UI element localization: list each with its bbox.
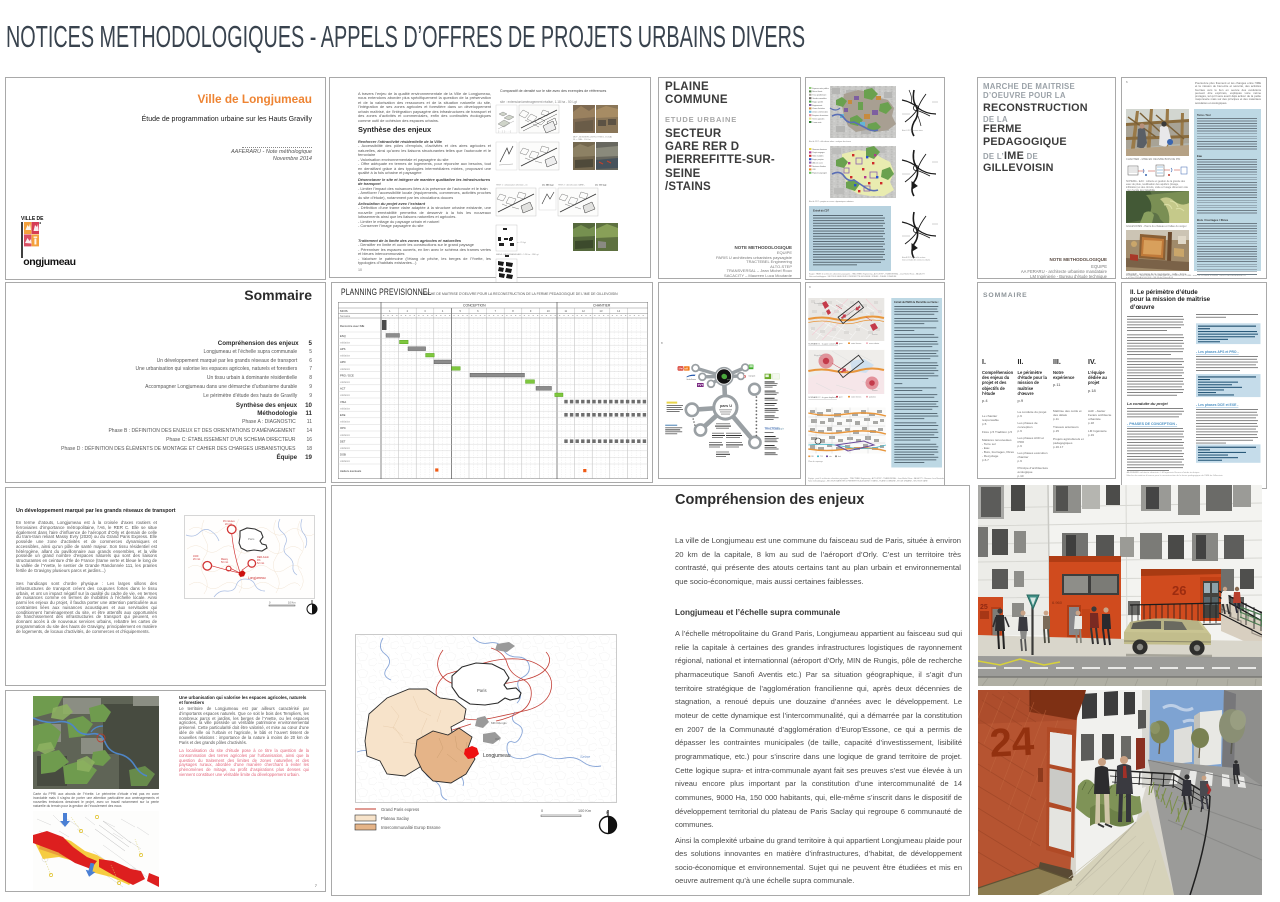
svg-text:50 min: 50 min [221,561,229,564]
svg-text:Extrait du CDT: Extrait du CDT [813,210,830,213]
svg-text:SCENARIO 1 : la gare conservee: SCENARIO 1 : la gare conservee [808,343,839,346]
svg-text:APD: APD [340,360,346,364]
svg-text:Rencontre avec IME: Rencontre avec IME [340,324,365,328]
svg-text:- Les phases DCE et EXE -: - Les phases DCE et EXE - [1196,403,1238,407]
svg-text:52 min: 52 min [257,562,265,565]
svg-text:26 min: 26 min [193,558,201,561]
svg-text:Longjumeau: Longjumeau [483,753,511,759]
svg-text:ESQ: ESQ [340,334,346,338]
svg-text:MADA - HAUSSMANNLAND - 1.26 ha: MADA - HAUSSMANNLAND - 1.26 ha - 134 Lgt [496,253,539,256]
svg-text:Semaine: Semaine [340,314,351,318]
svg-text:Engie: Engie [778,427,785,430]
svg-text:0: 0 [541,809,543,813]
svg-text:Note methodologique - SECTEUR: Note methodologique - SECTEUR GARE RER D… [808,480,928,483]
svg-text:APS: APS [340,347,346,351]
svg-text:Paris: Paris [477,688,487,693]
svg-text:validation: validation [340,394,351,397]
svg-text:Etat le CDT - ville dense alor: Etat le CDT - ville dense alors - analys… [809,140,851,143]
svg-text:Plateau Saclay: Plateau Saclay [381,816,410,821]
svg-text:Projets engages: Projets engages [812,151,824,154]
svg-text:DET: DET [340,439,346,443]
svg-text:Intercommunalité Europ Essone: Intercommunalité Europ Essone [381,825,441,830]
svg-text:pars U: pars U [720,403,732,408]
svg-text:Seine: Seine [580,754,591,759]
svg-text:MDP - BIGGIN/HILL/STR.OTTING.,: MDP - BIGGIN/HILL/STR.OTTING., DOUAI, [573,135,613,138]
svg-text:DOB: DOB [340,453,346,457]
svg-text:validation: validation [340,407,351,410]
svg-text:Zones commerciales: Zones commerciales [812,111,828,114]
svg-text:Zones d'activites: Zones d'activites [812,107,825,110]
svg-text:VILLE DE: VILLE DE [21,216,44,222]
svg-text:Trame verte: Trame verte [812,121,821,124]
svg-text:Equipements: Equipements [812,104,822,107]
svg-text:PRO / DCE: PRO / DCE [340,373,354,377]
svg-text:[..] [....]: [..] [....] [498,130,511,133]
svg-text:Tissu pavillonnaire: Tissu pavillonnaire [812,94,826,97]
svg-text:Note methodologique - SECTEUR: Note methodologique - SECTEUR GARE RER D… [809,275,897,278]
svg-text:validation: validation [340,421,351,424]
svg-text:polarites: polarites [869,396,876,399]
svg-text:Longjumeau: Longjumeau [248,576,266,580]
svg-text:alt. 110 Lgt: alt. 110 Lgt [595,183,607,186]
svg-text:validation: validation [340,355,351,358]
svg-text:TEST 2 : densification GARE -: TEST 2 : densification GARE - [558,183,585,186]
svg-text:S: S [744,374,746,378]
svg-text:Espaces verts publics: Espaces verts publics [812,87,828,90]
svg-text:NL + CAN - 1.10 ha: NL + CAN - 1.10 ha [573,138,591,141]
svg-text:gare: gare [839,343,843,345]
svg-text:validation: validation [340,341,351,344]
svg-text:Ateliers éventuels: Ateliers éventuels [340,469,362,473]
svg-text:Grands ensembles: Grands ensembles [812,97,826,100]
svg-text:Plan de reperage: Plan de reperage [808,460,823,463]
svg-text:Paris: Paris [248,537,255,541]
svg-text:OIN: OIN [812,169,816,171]
svg-text:EXE: EXE [340,413,346,417]
svg-text:voies ferrees: voies ferrees [851,343,861,345]
svg-text:gare: gare [839,397,843,399]
svg-text:RD: RD [811,456,814,458]
svg-text:26: 26 [1172,583,1186,598]
svg-text:validation: validation [340,381,351,384]
svg-text:- PHASES DE CONCEPTION -: - PHASES DE CONCEPTION - [1127,422,1178,426]
svg-text:Pierrefitte: Pierrefitte [814,302,823,305]
svg-text:0: 0 [269,601,271,605]
svg-text:Sites mutables: Sites mutables [812,155,823,158]
svg-text:TEST 1 : urbanisation rétentio: TEST 1 : urbanisation rétention - en [496,183,528,186]
svg-text:Etat A CDT enTerri En action -: Etat A CDT enTerri En action - [902,256,926,259]
svg-text:N: N [606,810,609,815]
svg-text:ACT: ACT [340,387,346,391]
svg-text:CHANTIER: CHANTIER [593,303,611,307]
svg-text:Stains: Stains [872,389,878,392]
svg-text:Pierrefitte: Pierrefitte [814,354,823,357]
svg-text:MOIS: MOIS [340,309,348,313]
svg-text:Ile-de-France: Ile-de-France [687,379,697,381]
svg-text:Secteurs d'etudes: Secteurs d'etudes [812,165,826,168]
svg-text:site: site [829,455,832,458]
svg-text:paris: paris [727,379,731,381]
svg-text:Emprises ferroviaires: Emprises ferroviaires [812,114,828,117]
svg-text:VISA: VISA [340,400,346,404]
svg-text:Terres agricoles: Terres agricoles [812,117,824,120]
svg-text:ZAC en cours: ZAC en cours [812,161,822,164]
svg-text:25: 25 [980,604,988,611]
svg-text:validation: validation [340,447,351,450]
svg-text:Grand Paris express: Grand Paris express [381,807,419,812]
svg-text:Equip. projetes: Equip. projetes [812,158,823,161]
svg-text:MIN Rungis: MIN Rungis [491,721,507,725]
svg-text:La conduite du projet: La conduite du projet [1127,401,1168,406]
svg-text:validation: validation [340,460,351,463]
svg-text:alt. 245 Lgt: alt. 245 Lgt [542,183,554,186]
svg-text:idf: idf [684,367,687,371]
svg-text:Orly: Orly [495,737,501,741]
svg-text:trainsport: trainsport [749,375,756,378]
svg-text:100 Km: 100 Km [578,809,591,813]
svg-text:bati: bati [838,455,841,458]
svg-text:ongjumeau: ongjumeau [23,256,75,268]
svg-text:24: 24 [989,720,1036,766]
svg-text:Equip. sportifs: Equip. sportifs [812,100,823,103]
svg-text:- Les phases APS et PRO -: - Les phases APS et PRO - [1196,350,1239,354]
svg-text:20 min: 20 min [225,523,233,526]
svg-text:OPC: OPC [340,426,346,430]
svg-text:Extrait du PADD de Pierrefitte: Extrait du PADD de Pierrefitte sur Seine… [894,301,939,304]
svg-text:10 Km: 10 Km [288,601,296,605]
svg-text:voies ferrees: voies ferrees [851,397,861,399]
svg-text:Equipe : paris U architectes u: Equipe : paris U architectes urbanistes … [808,477,944,480]
svg-text:SCENARIO 2 : la gare deplacee: SCENARIO 2 : la gare deplacee [808,396,837,399]
svg-text:6.960: 6.960 [1052,600,1063,605]
svg-text:CONCEPTION: CONCEPTION [463,303,486,307]
svg-text:Reserves foncieres: Reserves foncieres [812,148,827,151]
svg-text:Stains: Stains [872,333,878,336]
svg-text:validation: validation [340,434,351,437]
svg-text:Etat le CDT - projets en cours: Etat le CDT - projets en cours - dynamiq… [809,200,854,203]
svg-text:Etat 0 CDT - reseau viaire: Etat 0 CDT - reseau viaire [902,129,923,132]
svg-text:validation: validation [340,368,351,371]
svg-text:Espaces paysagers: Espaces paysagers [812,172,827,175]
svg-text:Bois et forets: Bois et forets [812,90,822,93]
svg-text:T11: T11 [820,456,823,458]
svg-text:mise a l'etude des secteurs ur: mise a l'etude des secteurs urbains [902,259,930,262]
svg-text:TVT: TVT [698,383,704,387]
svg-text:axes urbains: axes urbains [869,343,879,345]
